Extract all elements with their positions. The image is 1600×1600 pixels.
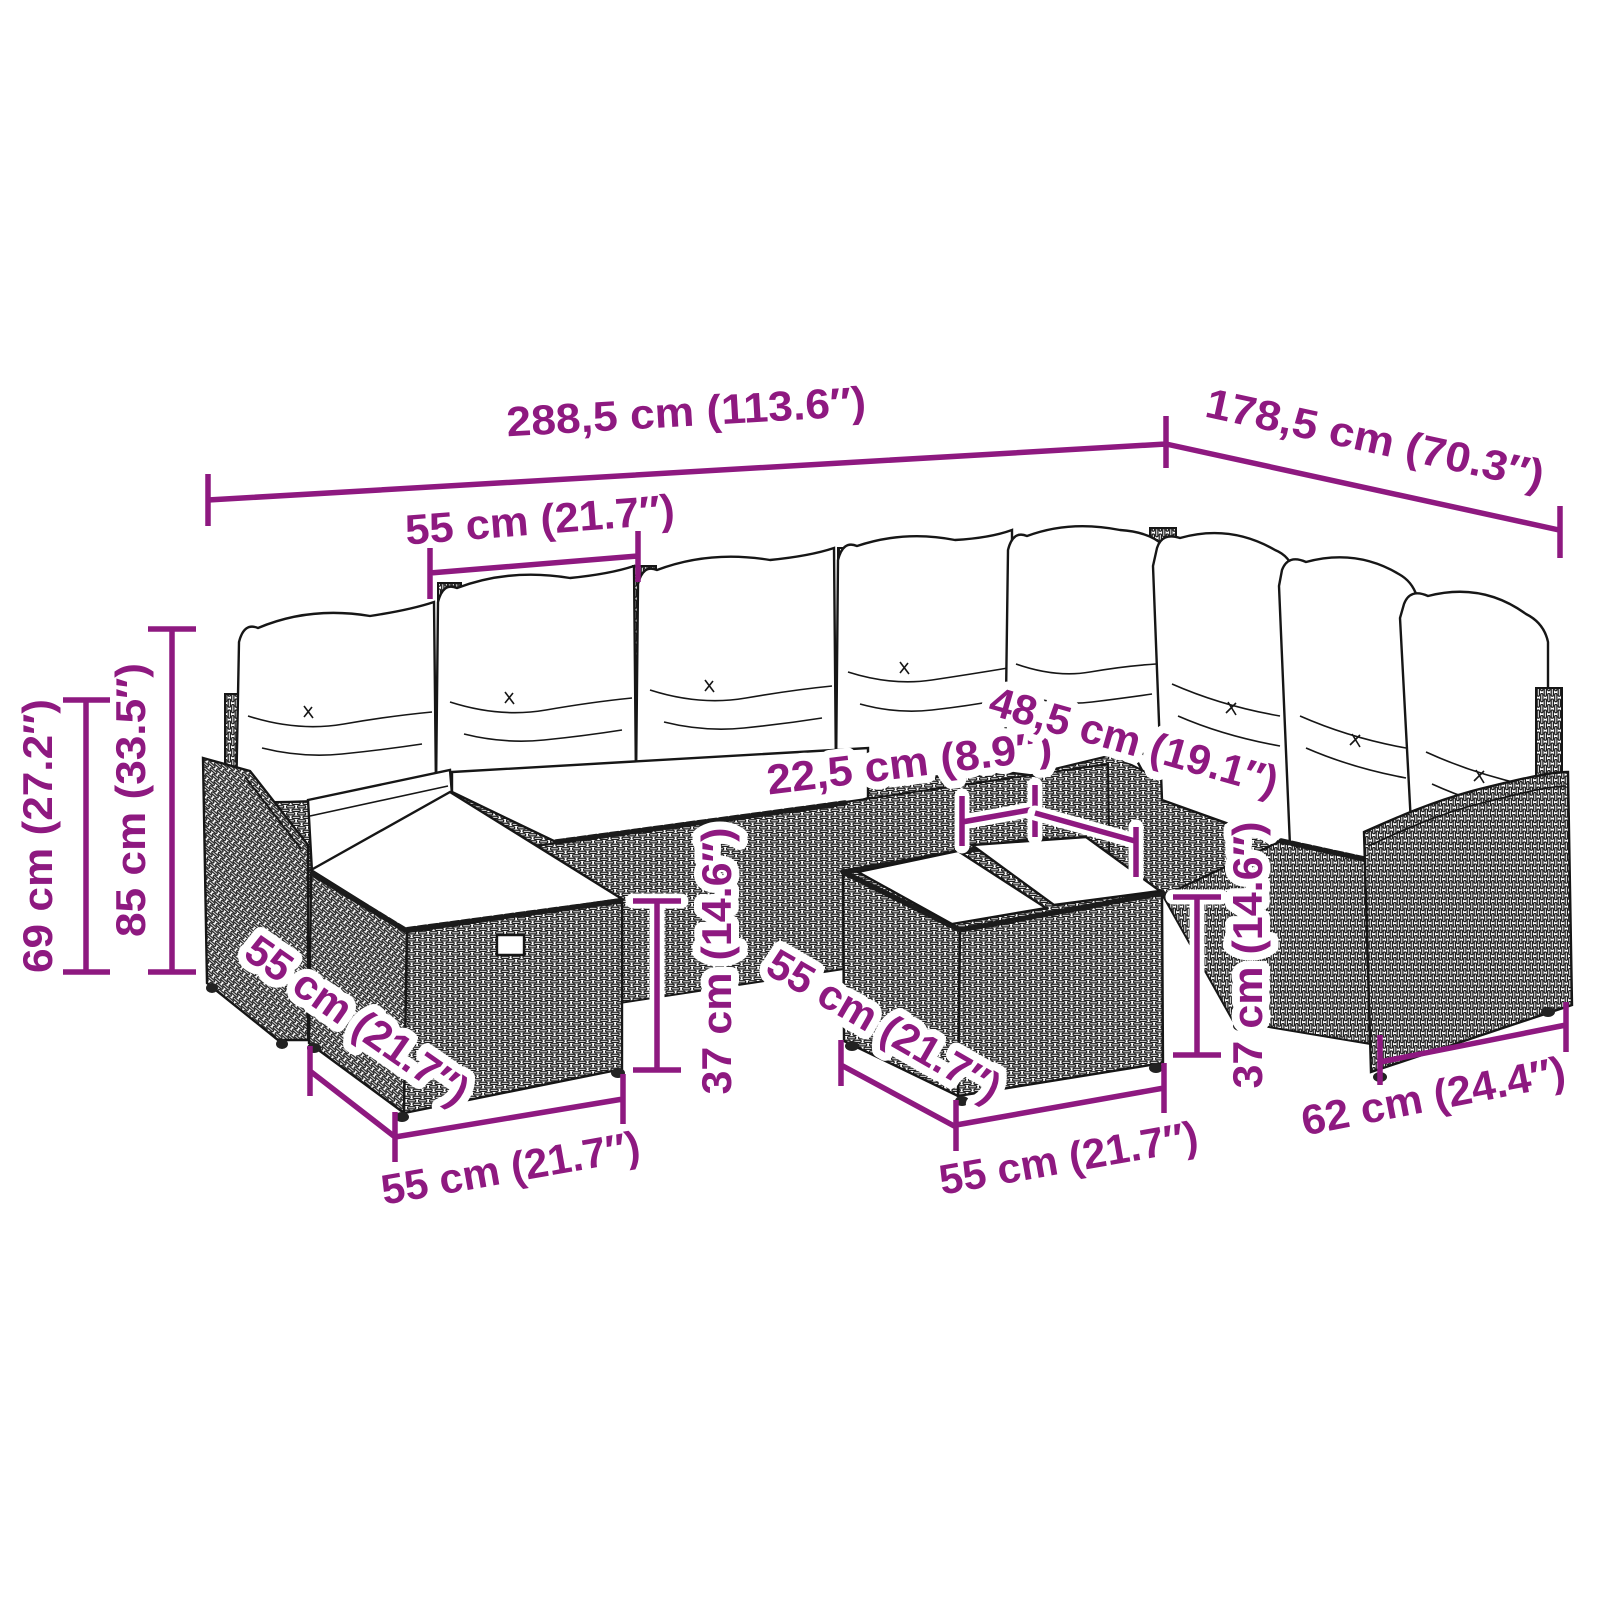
svg-text:85 cm (33.5″): 85 cm (33.5″) (107, 663, 154, 937)
svg-text:37 cm (14.6″): 37 cm (14.6″) (693, 828, 740, 1095)
svg-text:37 cm (14.6″): 37 cm (14.6″) (1224, 822, 1271, 1089)
svg-text:69 cm (27.2″): 69 cm (27.2″) (14, 699, 61, 973)
